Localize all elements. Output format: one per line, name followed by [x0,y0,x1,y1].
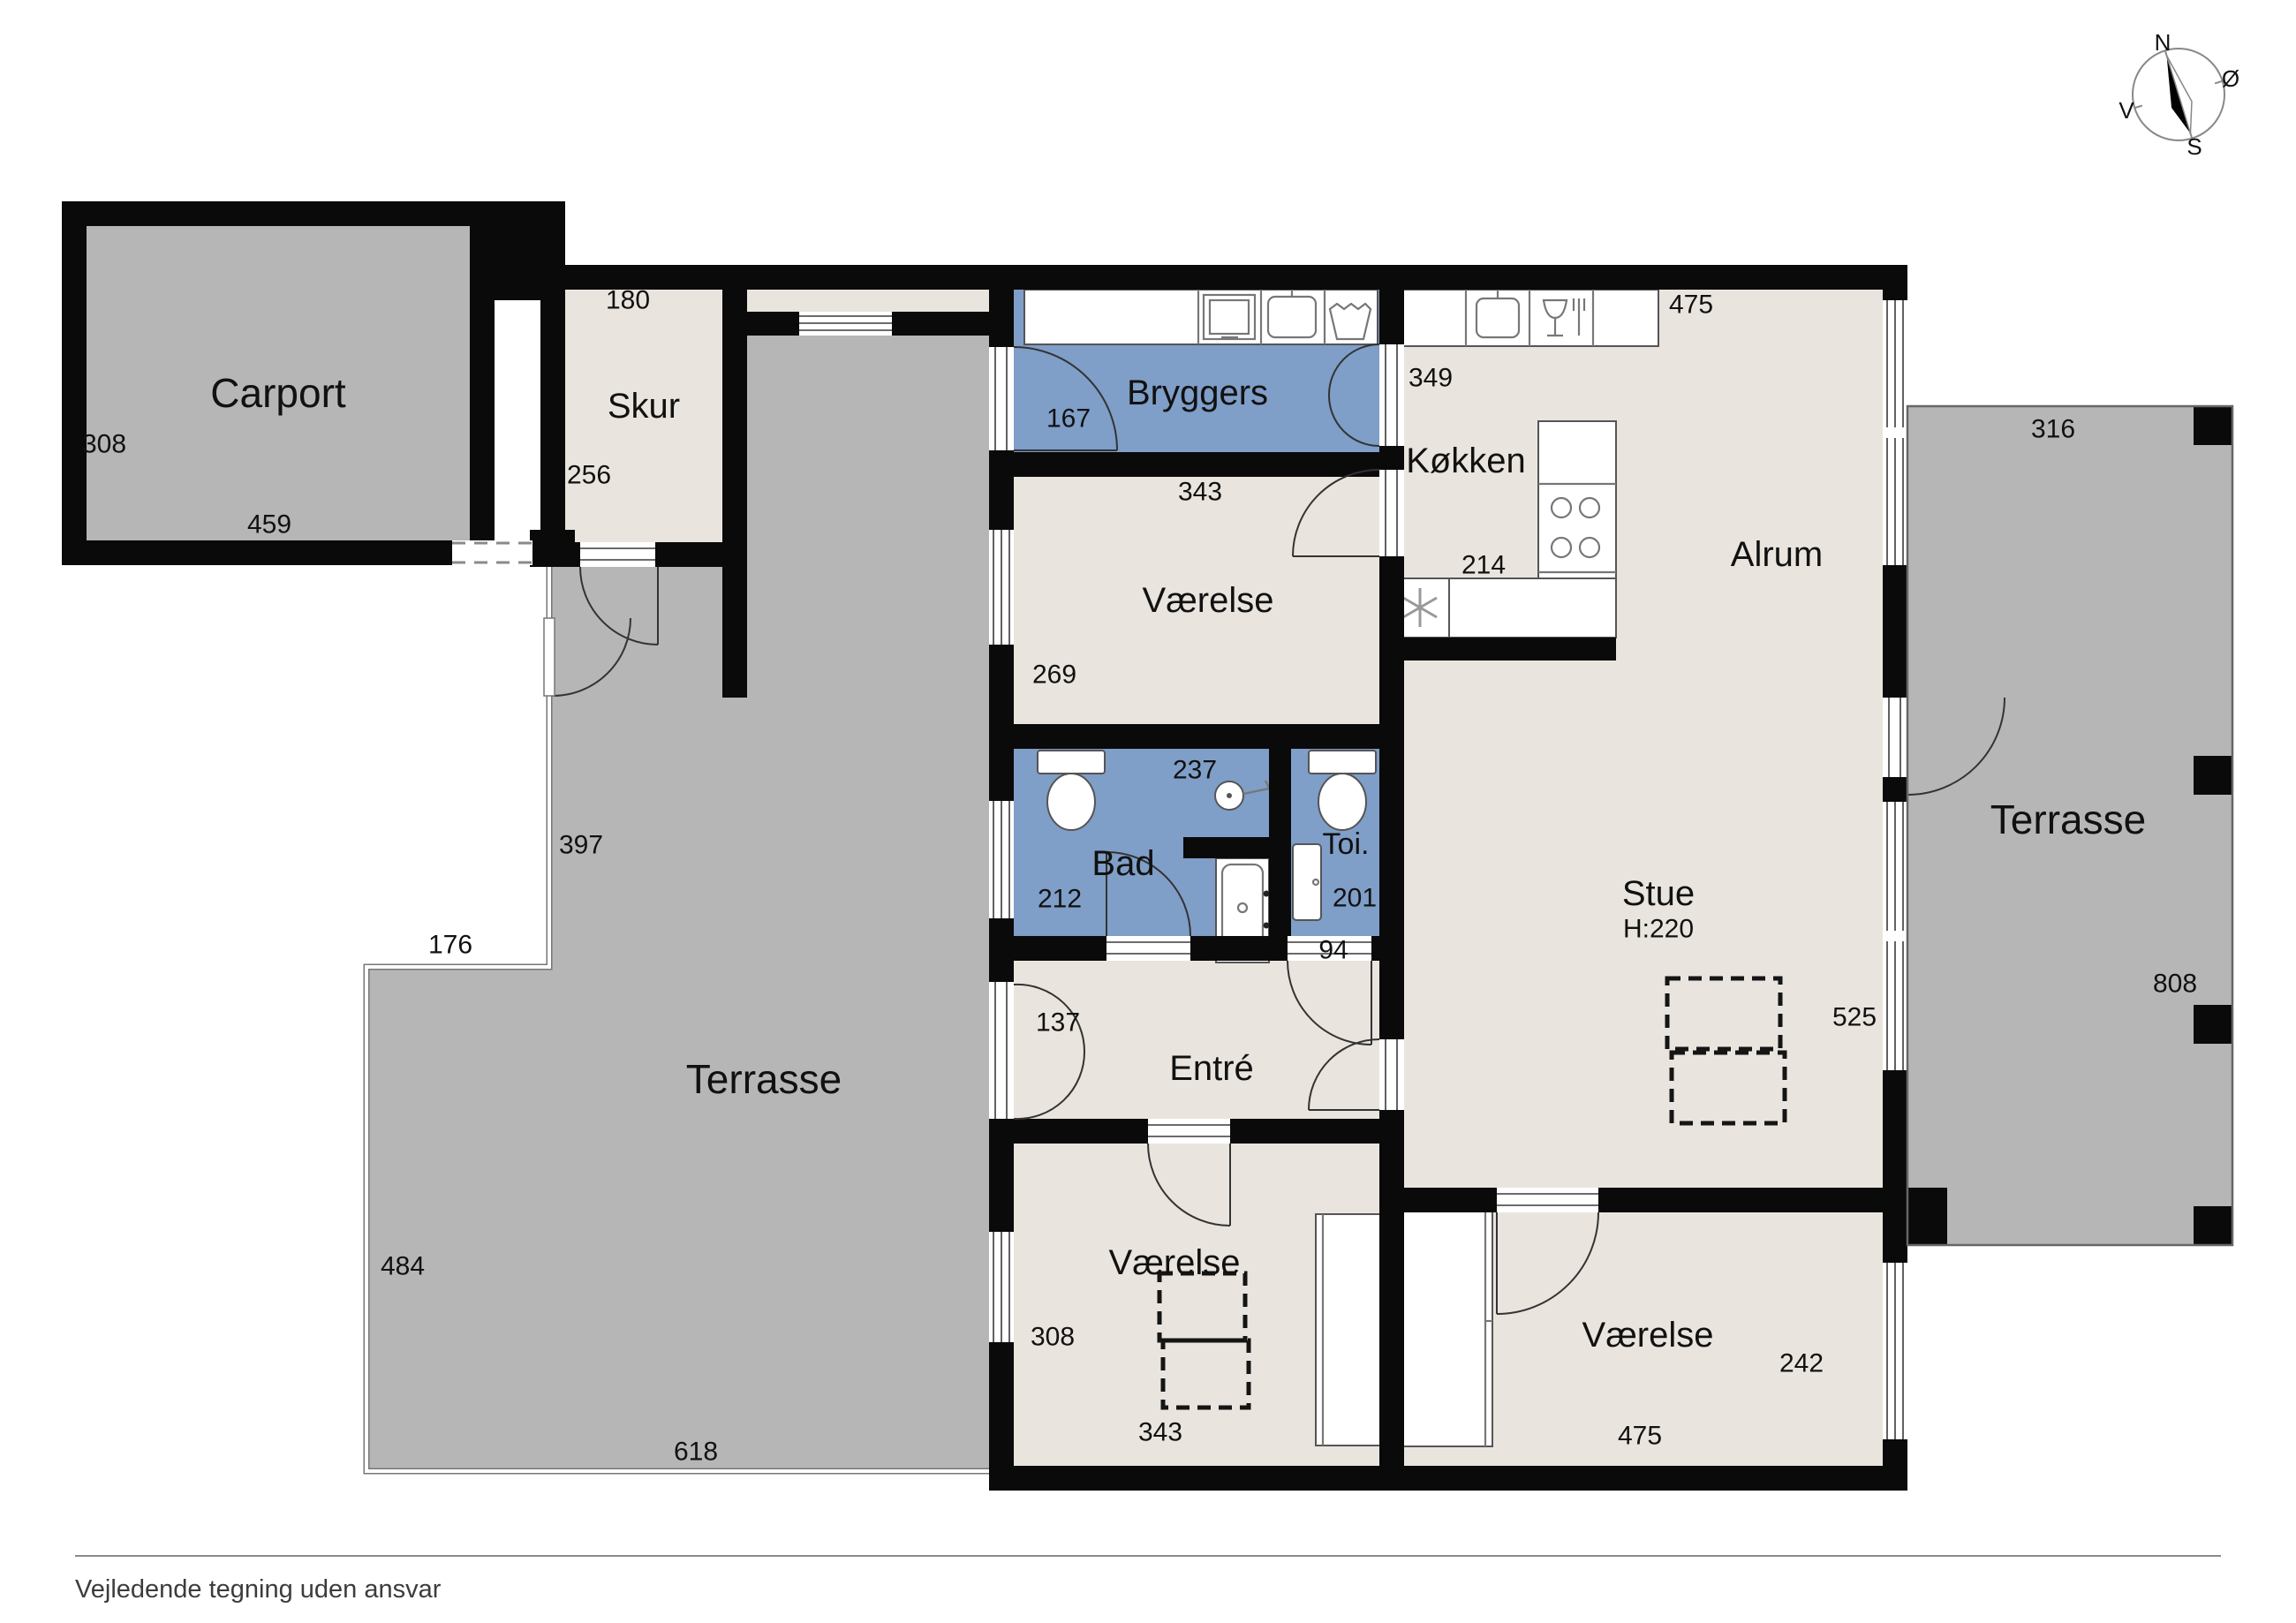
dim-label: 137 [1036,1008,1080,1038]
window [1883,802,1907,1070]
dim-label: 256 [567,461,611,490]
dim-label: 349 [1409,364,1453,393]
window [989,1232,1014,1342]
room-label-vaerelse-sw: Værelse [1109,1243,1241,1282]
dim-label: 316 [2031,415,2075,444]
terrasse-left-passage [747,336,989,567]
dim-label: 484 [381,1252,425,1281]
room-label-entre: Entré [1169,1049,1254,1088]
window [1883,1263,1907,1439]
dim-label: 94 [1318,936,1348,965]
dim-label: 308 [82,430,126,459]
room-label-stue: Stue [1622,874,1695,913]
hand-sink-icon [1293,844,1321,920]
dim-label: 808 [2153,970,2197,999]
dim-label: 475 [1618,1422,1662,1451]
dim-label: 525 [1832,1003,1877,1032]
dim-label: 269 [1032,661,1076,690]
compass-w: V [2119,97,2134,124]
window [989,530,1014,645]
room-label-stue-height: H:220 [1623,915,1694,944]
dim-label: 397 [559,831,603,860]
compass-east: Ø [2222,65,2239,92]
window [1883,300,1907,565]
dim-label: 618 [674,1438,718,1467]
dim-label: 343 [1178,478,1222,507]
dim-label: 475 [1669,291,1713,320]
dim-label: 180 [606,286,650,315]
window [799,312,892,336]
footer: Vejledende tegning uden ansvar [75,1556,2221,1604]
room-label-vaerelse-se: Værelse [1582,1316,1714,1355]
wardrobe [1316,1214,1380,1446]
footer-disclaimer: Vejledende tegning uden ansvar [75,1575,442,1604]
room-label-skur: Skur [608,387,680,426]
compass-n: N [2155,29,2171,56]
terrasse-left-floor [366,567,989,1471]
room-label-toi: Toi. [1323,827,1370,861]
floor-plan-page: N Ø S V CarportSkurBryggersKøkkenAlrumVæ… [0,0,2296,1623]
room-label-vaerelse-top: Værelse [1143,581,1274,620]
room-label-kokken: Køkken [1406,442,1526,480]
room-label-bad: Bad [1091,844,1154,883]
dim-label: 308 [1031,1323,1075,1352]
dim-label: 201 [1333,884,1377,913]
dim-label: 214 [1461,551,1506,580]
kitchen-counter-south [1449,578,1616,638]
room-label-terrasse-right: Terrasse [1990,796,2146,842]
floor-plan-svg: N Ø S V CarportSkurBryggersKøkkenAlrumVæ… [0,0,2296,1623]
wardrobe [1397,1199,1492,1446]
dim-label: 212 [1038,885,1082,914]
compass-rose-icon: N Ø S V [2119,29,2239,160]
dim-label: 167 [1046,404,1091,434]
room-label-terrasse-left: Terrasse [686,1056,842,1102]
window [989,801,1014,918]
dim-label: 459 [247,510,291,540]
dim-label: 343 [1138,1418,1182,1447]
compass-s: S [2186,133,2202,160]
dim-label: 237 [1173,756,1217,785]
room-label-carport: Carport [210,370,346,416]
terrasse-gate [544,618,555,696]
dim-label: 176 [428,931,472,960]
dim-label: 242 [1779,1349,1824,1378]
room-label-alrum: Alrum [1731,535,1823,574]
room-label-bryggers: Bryggers [1127,374,1268,412]
